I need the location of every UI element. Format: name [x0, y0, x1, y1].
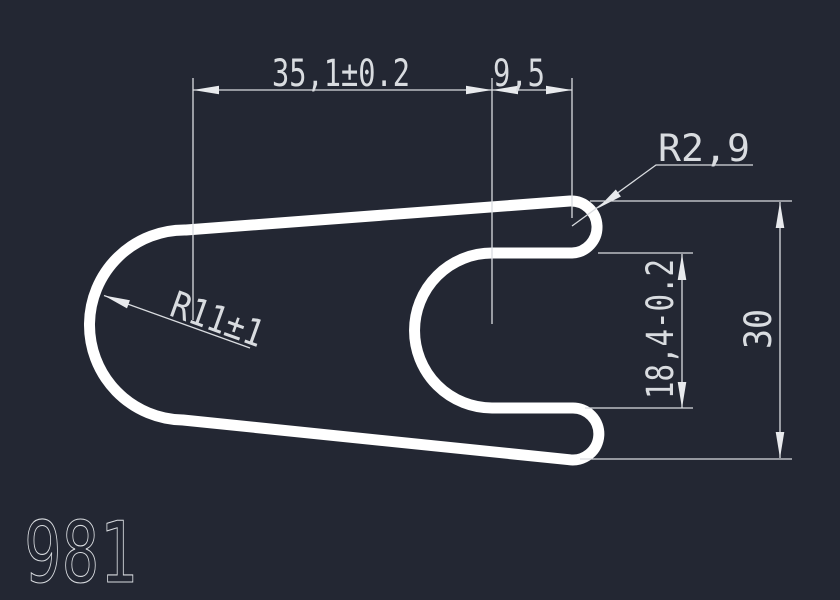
- dimension-slot-height: 18,4-0.2: [585, 253, 693, 408]
- arrowhead-left: [193, 86, 219, 95]
- dimension-text-nose-radius: R11±1: [165, 283, 270, 356]
- cad-drawing-canvas: 35,1±0.2 9,5 R2,9 R11±1: [0, 0, 840, 600]
- dimension-nose-radius: R11±1: [103, 283, 270, 356]
- arrowhead-top: [776, 202, 785, 228]
- drawing-svg: 35,1±0.2 9,5 R2,9 R11±1: [0, 0, 840, 600]
- dimension-text-width-total: 35,1±0.2: [272, 52, 410, 95]
- leader-arrowhead: [103, 291, 130, 308]
- title-block: 981: [24, 504, 137, 600]
- dimension-text-tip-radius: R2,9: [658, 127, 750, 170]
- dimension-overall-height: 30: [580, 201, 792, 459]
- arrowhead-bottom: [776, 432, 785, 458]
- arrowhead-right: [546, 86, 572, 95]
- dimension-tip-offset: 9,5: [492, 52, 572, 218]
- dimension-tip-radius: R2,9: [572, 127, 753, 226]
- part-profile-path: [89, 201, 598, 460]
- part-outline: [89, 201, 598, 460]
- dimension-text-slot-height: 18,4-0.2: [639, 259, 682, 399]
- dimension-text-tip-offset: 9,5: [493, 52, 545, 95]
- arrowhead-right: [466, 86, 492, 95]
- drawing-number: 981: [24, 504, 137, 600]
- dimension-text-overall-height: 30: [737, 309, 780, 349]
- dimension-width-total: 35,1±0.2: [193, 52, 492, 324]
